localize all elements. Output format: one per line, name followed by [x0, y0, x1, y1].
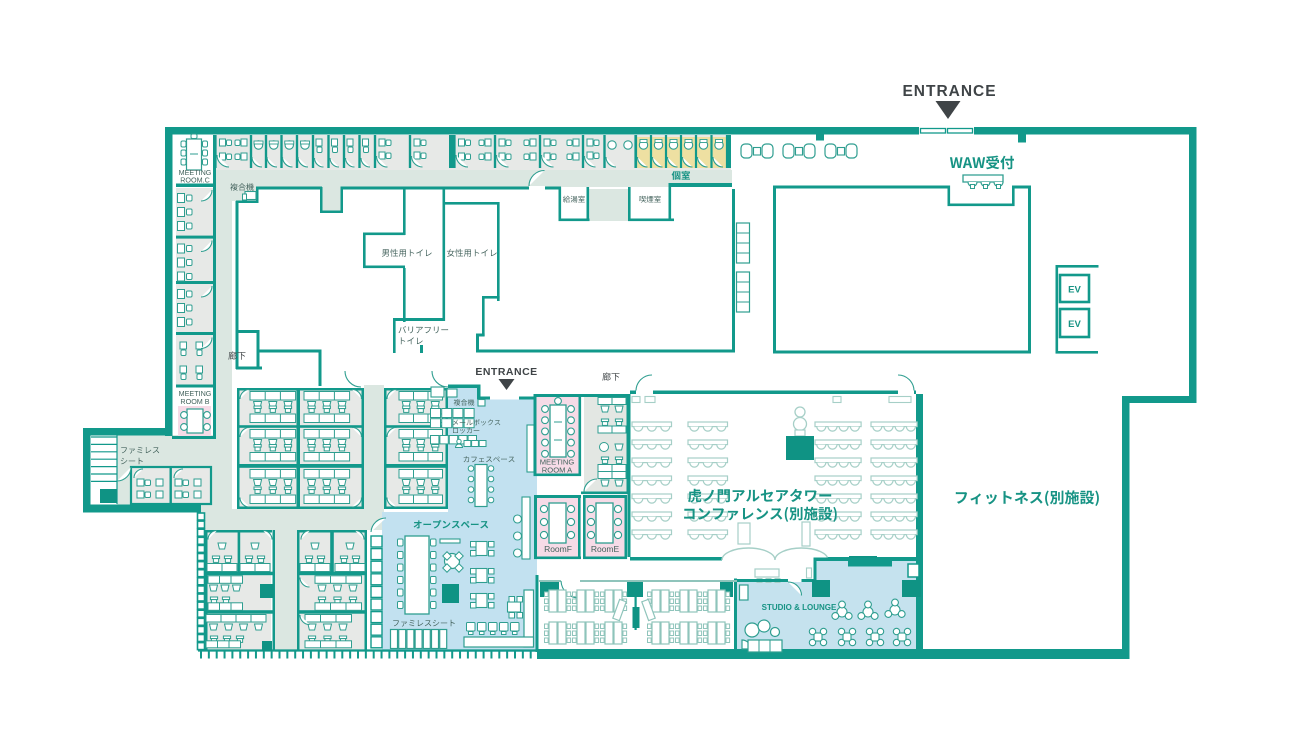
svg-text:ENTRANCE: ENTRANCE — [902, 83, 996, 100]
svg-text:ENTRANCE: ENTRANCE — [475, 366, 537, 378]
svg-text:RoomF: RoomF — [544, 544, 572, 554]
svg-text:ROOM A: ROOM A — [542, 466, 573, 475]
svg-text:ROOM.C: ROOM.C — [180, 176, 210, 185]
svg-text:EV: EV — [1068, 285, 1081, 296]
svg-text:ROOM B: ROOM B — [180, 397, 209, 406]
svg-text:EV: EV — [1068, 319, 1081, 330]
svg-text:STUDIO & LOUNGE: STUDIO & LOUNGE — [762, 603, 837, 612]
svg-text:RoomE: RoomE — [591, 544, 620, 554]
